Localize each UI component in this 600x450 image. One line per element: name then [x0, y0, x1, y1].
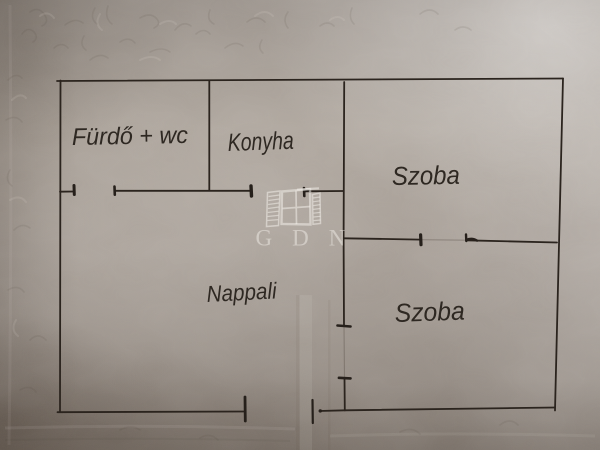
svg-text:Szoba: Szoba: [394, 296, 465, 328]
svg-text:Fürdő + wc: Fürdő + wc: [72, 122, 188, 151]
svg-text:Nappali: Nappali: [206, 277, 278, 307]
svg-text:Konyha: Konyha: [227, 127, 294, 157]
svg-text:GDN: GDN: [256, 226, 366, 251]
svg-text:Szoba: Szoba: [392, 160, 461, 191]
